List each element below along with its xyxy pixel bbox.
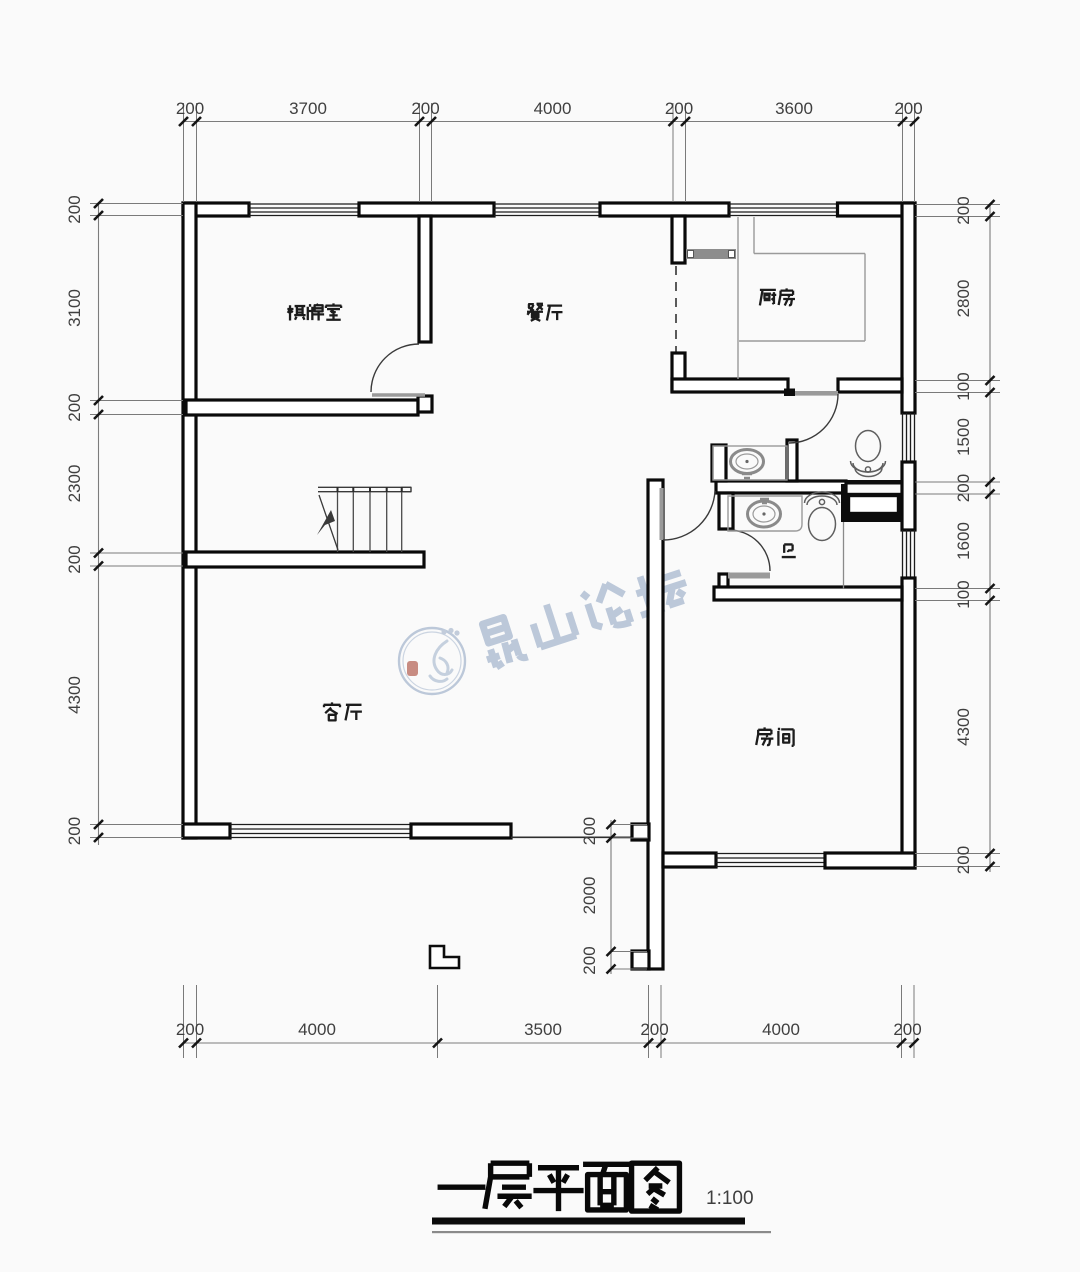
svg-text:4300: 4300 [954, 708, 973, 746]
svg-text:1500: 1500 [954, 418, 973, 456]
svg-text:200: 200 [954, 474, 973, 502]
svg-text:3600: 3600 [775, 99, 813, 118]
svg-text:4000: 4000 [298, 1020, 336, 1039]
svg-text:3700: 3700 [289, 99, 327, 118]
svg-text:200: 200 [176, 1020, 204, 1039]
svg-text:200: 200 [411, 99, 439, 118]
svg-text:200: 200 [954, 846, 973, 874]
svg-text:3100: 3100 [65, 289, 84, 327]
svg-text:200: 200 [580, 817, 599, 845]
svg-text:2300: 2300 [65, 465, 84, 503]
svg-text:200: 200 [893, 1020, 921, 1039]
svg-text:200: 200 [65, 393, 84, 421]
svg-text:200: 200 [954, 196, 973, 224]
svg-text:200: 200 [665, 99, 693, 118]
svg-text:4000: 4000 [534, 99, 572, 118]
svg-text:100: 100 [954, 580, 973, 608]
svg-text:2000: 2000 [580, 877, 599, 915]
svg-text:200: 200 [640, 1020, 668, 1039]
svg-text:200: 200 [176, 99, 204, 118]
svg-text:200: 200 [65, 545, 84, 573]
svg-text:1600: 1600 [954, 522, 973, 560]
svg-text:4000: 4000 [762, 1020, 800, 1039]
svg-text:200: 200 [65, 195, 84, 223]
svg-text:200: 200 [894, 99, 922, 118]
svg-text:100: 100 [954, 372, 973, 400]
svg-text:1:100: 1:100 [706, 1188, 754, 1209]
svg-text:4300: 4300 [65, 676, 84, 714]
svg-text:2800: 2800 [954, 280, 973, 318]
svg-text:3500: 3500 [524, 1020, 562, 1039]
svg-text:200: 200 [65, 817, 84, 845]
svg-text:200: 200 [580, 946, 599, 974]
